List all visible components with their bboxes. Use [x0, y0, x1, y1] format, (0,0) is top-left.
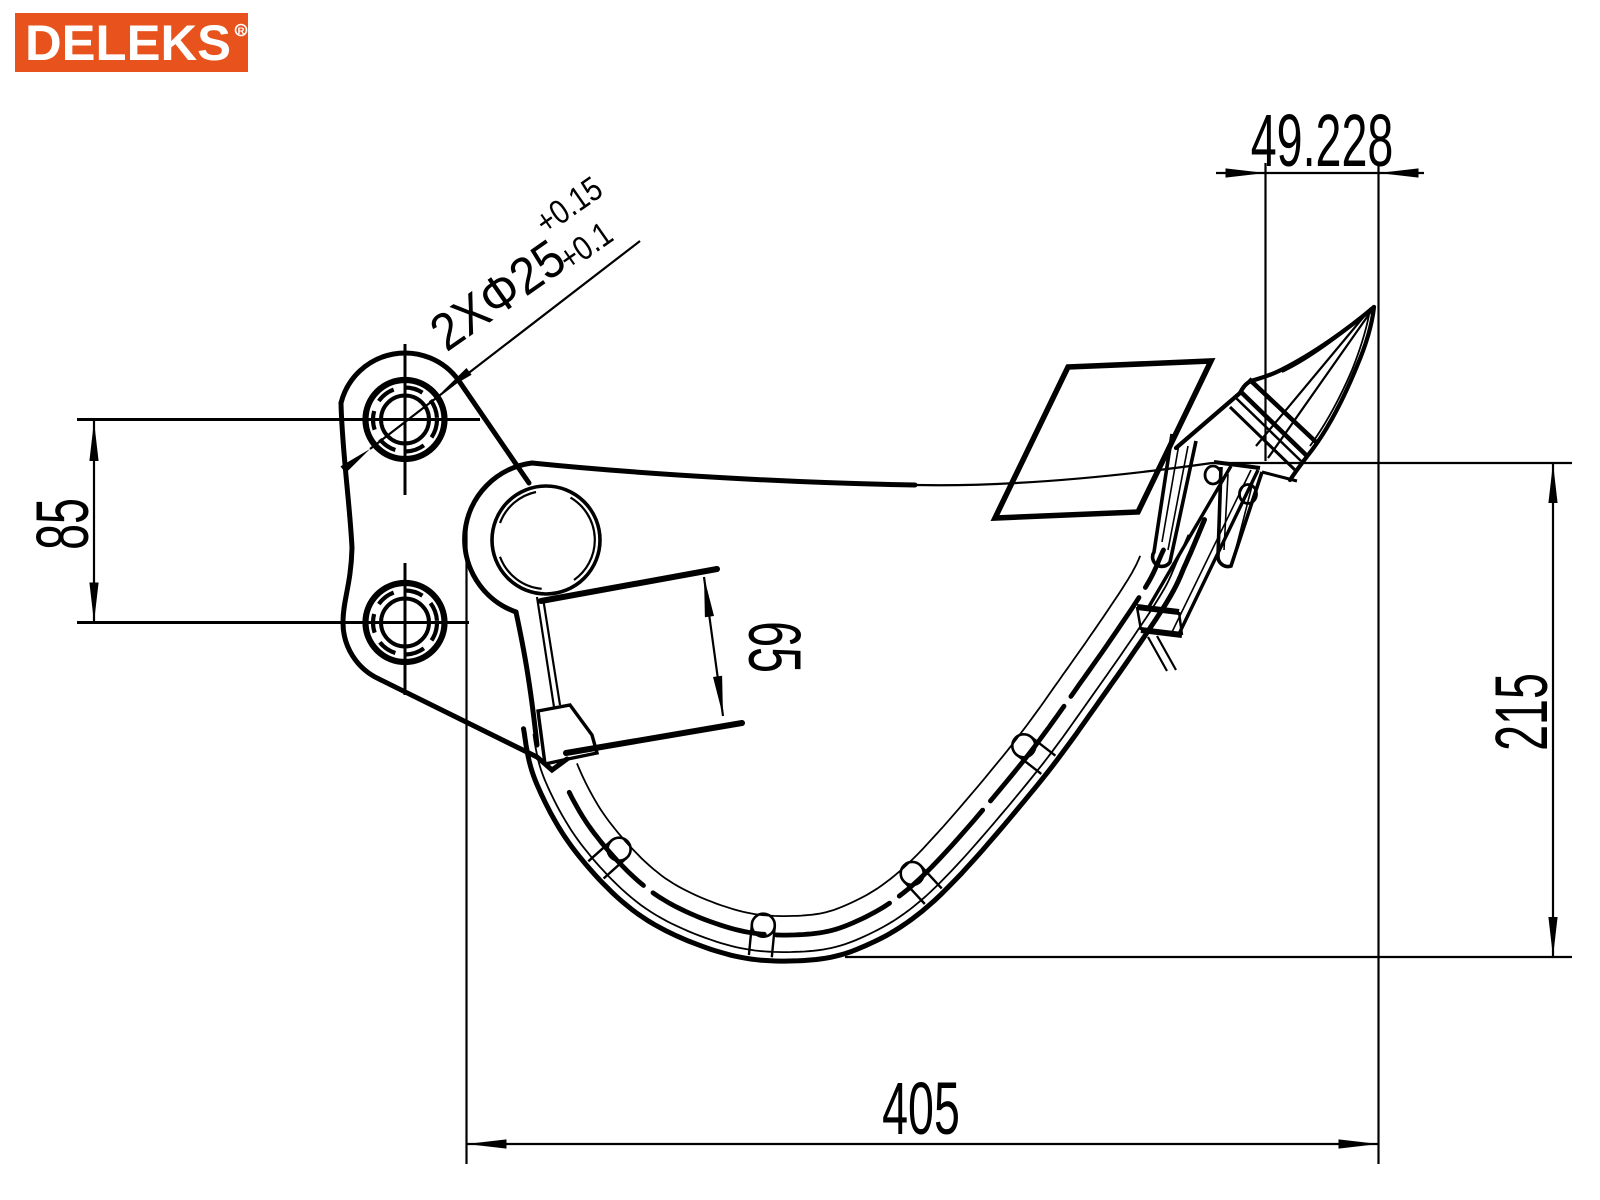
svg-text:215: 215 — [1481, 673, 1564, 751]
svg-text:R: R — [238, 26, 245, 37]
svg-text:DELEKS: DELEKS — [25, 15, 231, 71]
svg-text:85: 85 — [22, 498, 105, 550]
svg-text:405: 405 — [882, 1068, 960, 1151]
svg-text:65: 65 — [732, 621, 815, 673]
svg-text:49.228: 49.228 — [1251, 100, 1394, 183]
